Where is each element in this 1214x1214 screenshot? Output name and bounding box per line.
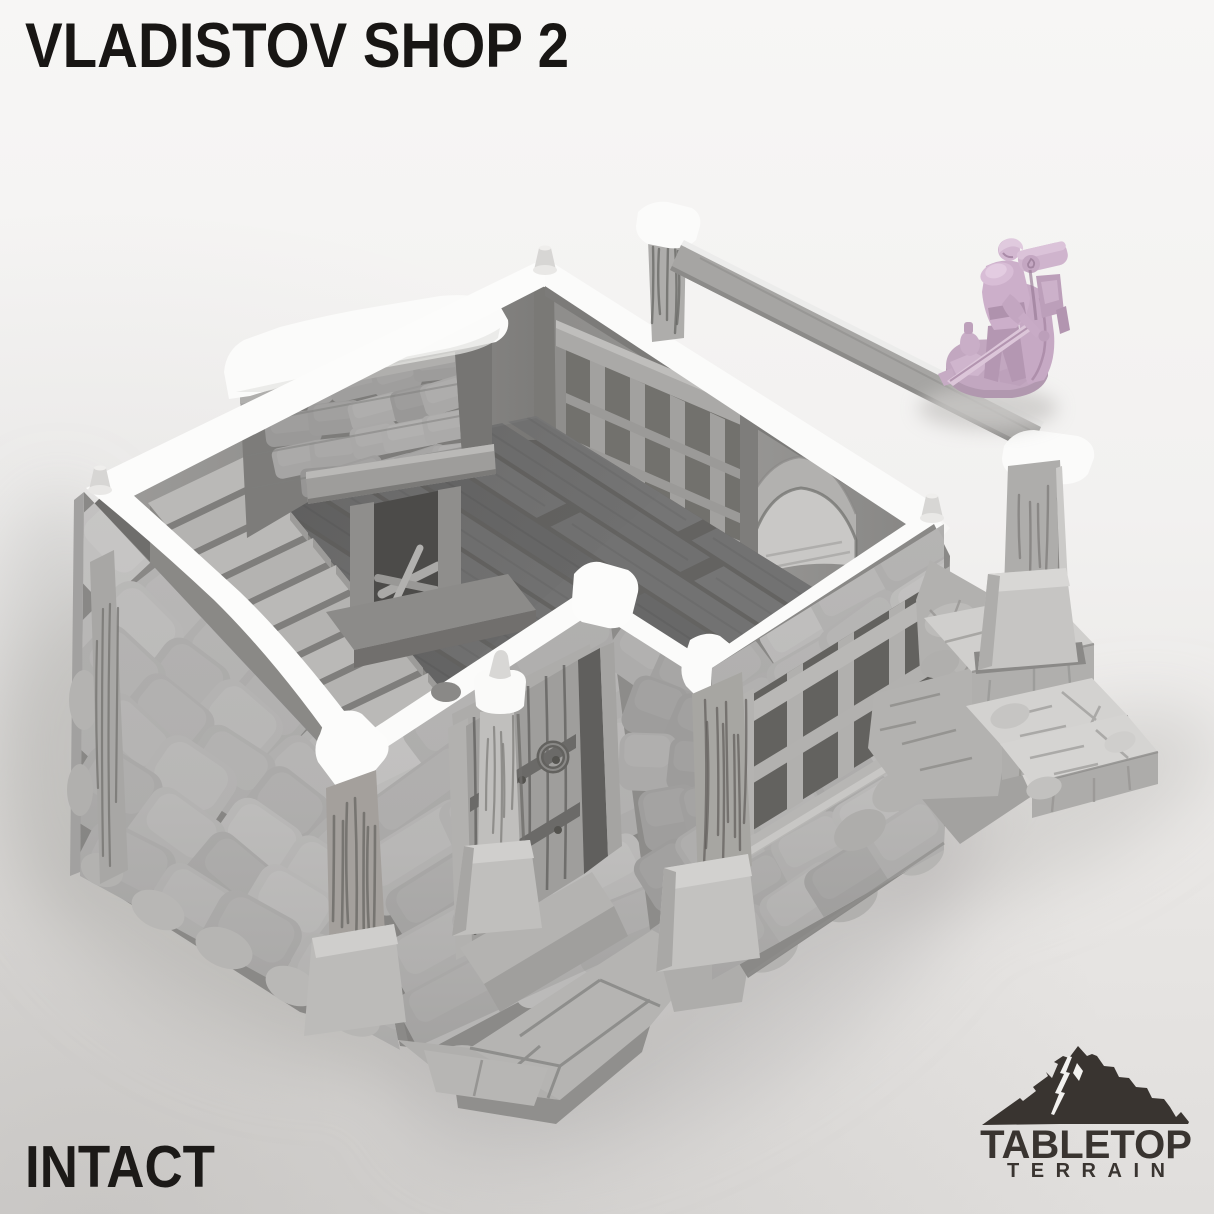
svg-text:VLADISTOV SHOP 2: VLADISTOV SHOP 2	[25, 11, 569, 81]
svg-text:INTACT: INTACT	[25, 1134, 215, 1200]
